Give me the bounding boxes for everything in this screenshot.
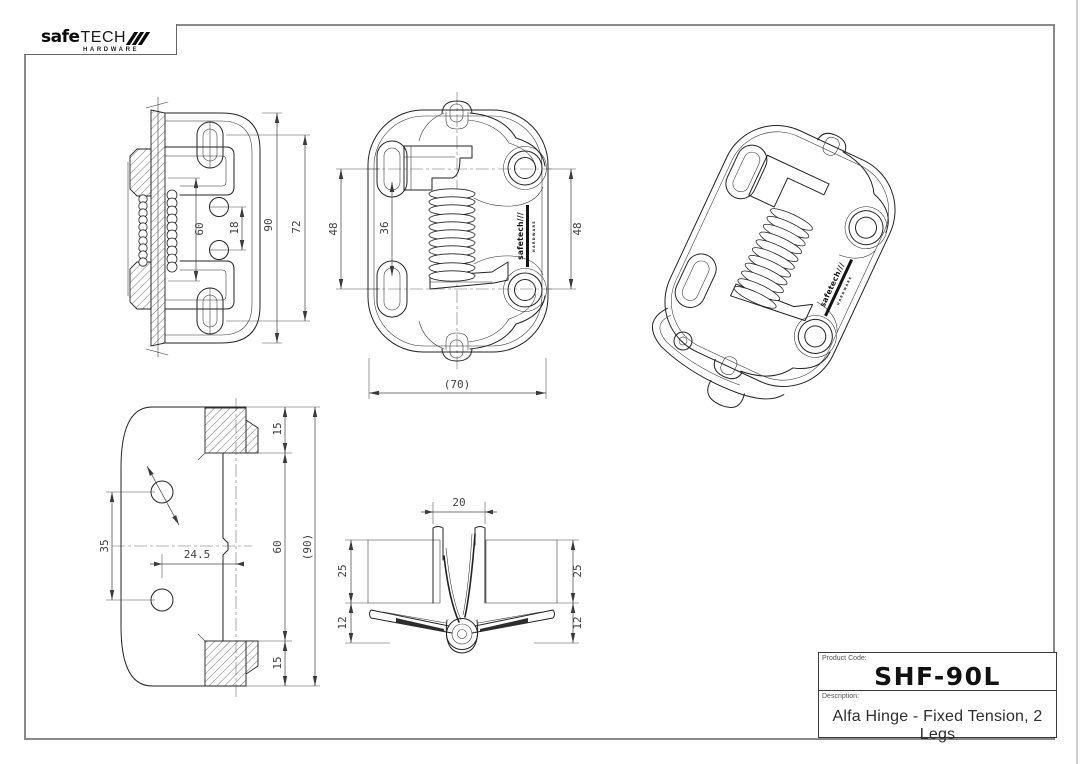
logo-word-tech: tech [81,30,127,46]
logo-tagline: HARDWARE [83,47,176,53]
dim-inner-height-60: 60 [271,540,284,553]
dim-right-leaf-drop-12: 12 [571,616,584,629]
product-code-label: Product Code: [822,655,867,662]
logo-box: safetech HARDWARE [24,24,177,55]
view-end: 20 25 12 25 12 [336,496,584,653]
dim-hole-pitch-48: 48 [571,222,584,235]
dim-left-leg-depth-25: 25 [336,564,349,577]
title-block-description-cell: Description: Alfa Hinge - Fixed Tension,… [819,691,1056,737]
dim-right-leg-depth-25: 25 [571,564,584,577]
view-side-section: 60 18 90 72 [128,97,310,357]
dim-hole-pitch-18: 18 [228,221,241,234]
view-plan: 35 24.5 15 60 15 (90) [98,398,320,697]
dim-left-leaf-drop-12: 12 [336,616,349,629]
drawing-sheet: safetech HARDWARE [0,0,1080,764]
spring-isometric [732,205,814,312]
svg-text:HARDWARE: HARDWARE [532,220,536,252]
dim-slot-pitch-72: 72 [290,220,303,233]
dim-slot-span-36: 36 [378,221,391,234]
spring-front [429,189,475,281]
dim-top-pad-15: 15 [271,422,284,435]
dim-leg-gap-20: 20 [452,496,465,509]
logo-bars-icon [130,32,148,45]
title-block-product-code-cell: Product Code: SHF-90L [819,653,1056,691]
view-isometric: safetech/// HARDWARE [631,97,918,439]
logo-word-safe: safe [41,29,80,46]
dim-bottom-pad-15: 15 [271,656,284,669]
dim-overall-width-70: (70) [444,378,471,391]
dim-overall-height-90-ref: (90) [301,534,314,561]
brand-stamp-isometric: safetech/// HARDWARE [815,255,859,320]
drawing-canvas: 60 18 90 72 [0,0,1080,764]
product-code-value: SHF-90L [819,662,1056,691]
title-block: Product Code: SHF-90L Description: Alfa … [818,652,1057,738]
safetech-logo: safetech [41,29,176,46]
dim-hole-offset-24-5: 24.5 [184,548,211,561]
description-label: Description: [822,693,859,700]
dim-slot-pitch-48: 48 [327,222,340,235]
svg-text:safetech///: safetech/// [516,212,525,260]
dim-spring-span: 60 [193,222,206,235]
view-front: safetech/// HARDWARE 48 36 48 (70) [327,92,584,399]
brand-stamp-front: safetech/// HARDWARE [516,205,536,267]
dim-hole-pitch-35: 35 [98,539,111,552]
description-value: Alfa Hinge - Fixed Tension, 2 Legs [819,708,1056,744]
dim-overall-height-90: 90 [262,218,275,231]
